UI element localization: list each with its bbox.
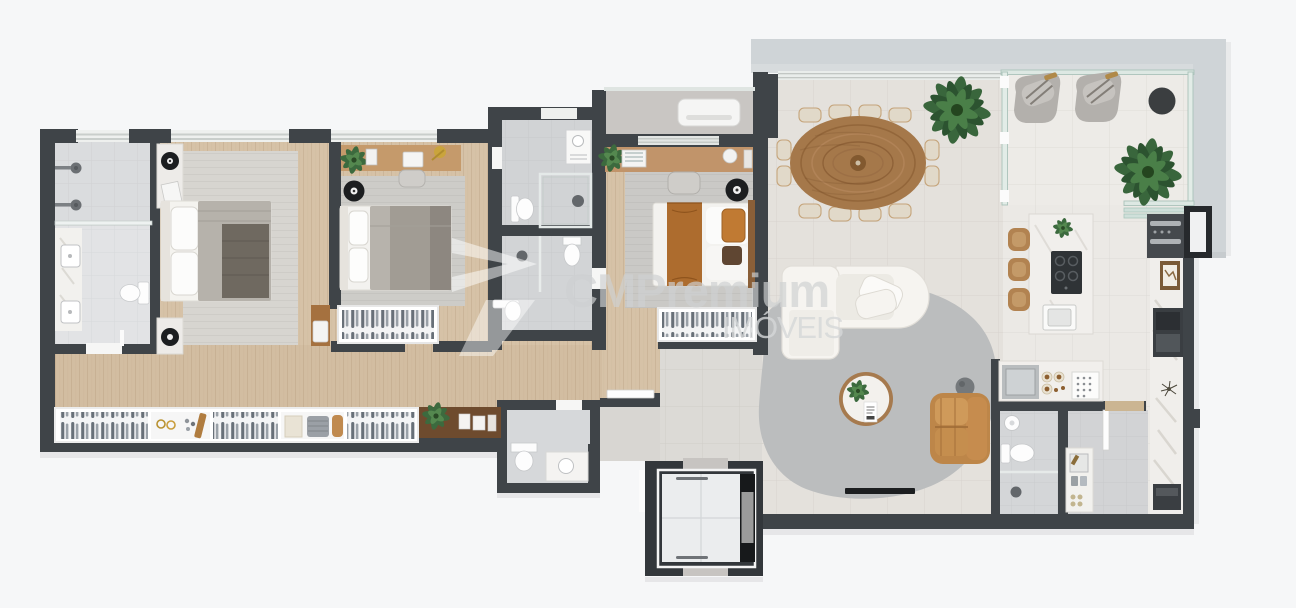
svg-text:IMÓVEIS: IMÓVEIS: [722, 310, 843, 345]
